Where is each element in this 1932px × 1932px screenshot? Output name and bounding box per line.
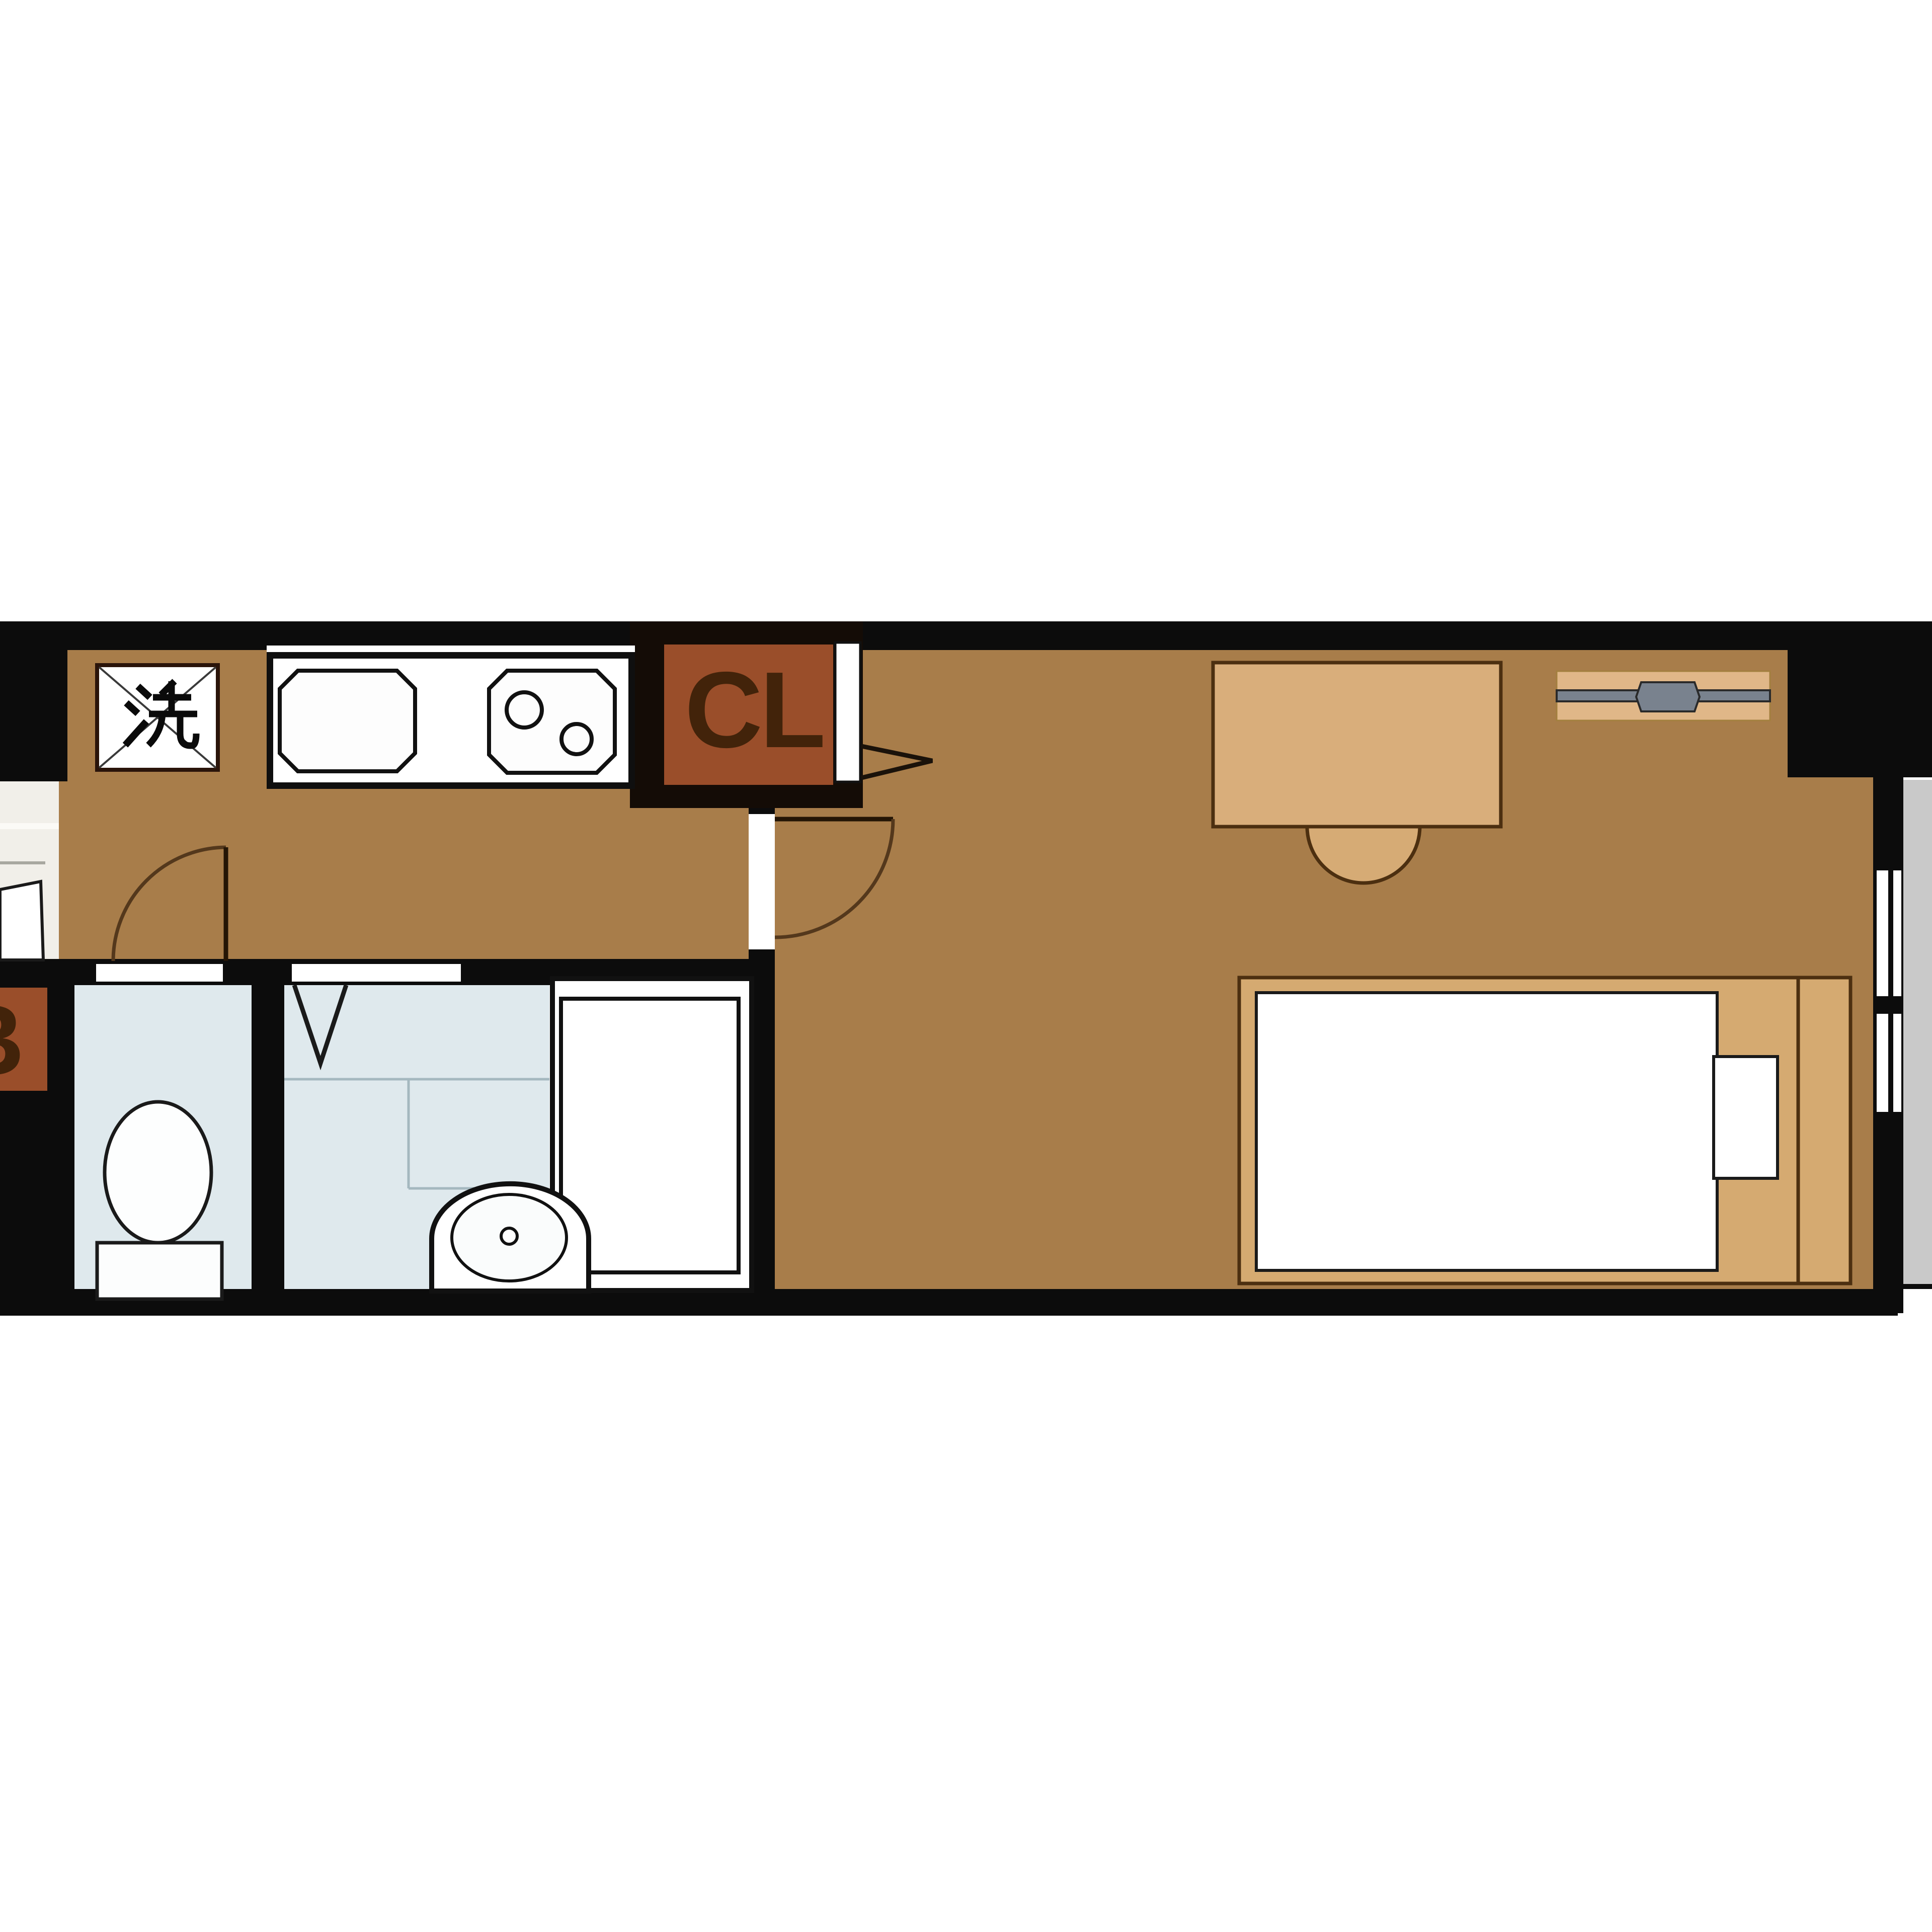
- svg-text:B: B: [0, 984, 24, 1096]
- svg-text:CL: CL: [685, 649, 823, 770]
